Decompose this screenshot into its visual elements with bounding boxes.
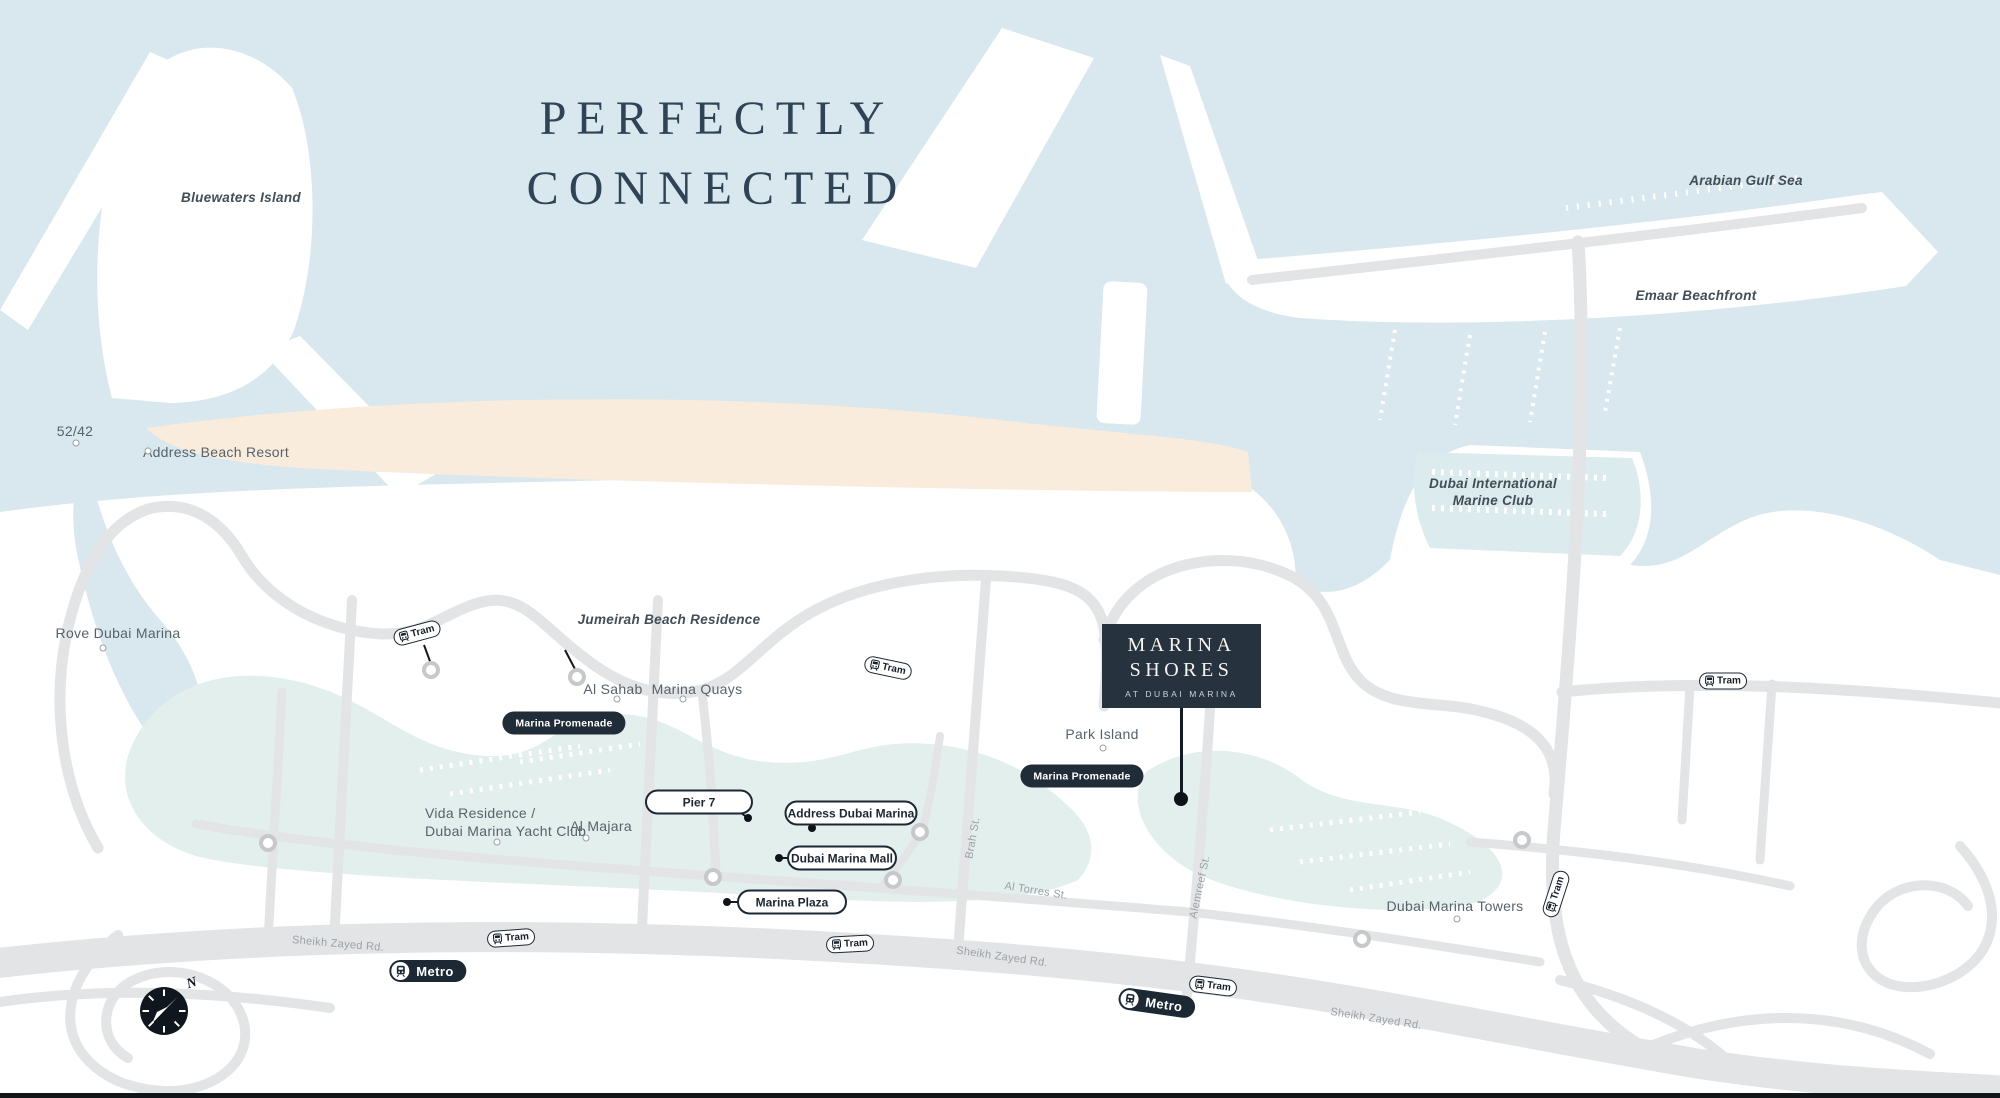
- promenade-badge: Marina Promenade: [502, 712, 625, 735]
- tram-badge: Tram: [392, 619, 443, 648]
- place-label-arabian-gulf-sea: Arabian Gulf Sea: [1689, 173, 1803, 190]
- tram-label: Tram: [881, 661, 907, 677]
- place-label-vida-residence-yacht-club: Vida Residence /Dubai Marina Yacht Club: [425, 805, 586, 840]
- road-label: Sheikh Zayed Rd.: [955, 945, 1048, 970]
- junction-ring: [259, 834, 277, 852]
- title-line-1: PERFECTLY: [417, 84, 1017, 154]
- label-line: Marina Quays: [652, 681, 743, 699]
- place-label-park-island: Park Island: [1065, 726, 1138, 744]
- tram-badge: Tram: [1541, 869, 1572, 920]
- tram-label: Tram: [1206, 980, 1231, 994]
- place-marker: [494, 839, 501, 846]
- project-location-dot: [1174, 792, 1188, 806]
- place-marker: [1454, 916, 1461, 923]
- poi-pill-marina-plaza: Marina Plaza: [737, 890, 847, 915]
- tram-badge: Tram: [826, 934, 875, 953]
- tram-label: Tram: [844, 938, 868, 950]
- compass-icon: N: [139, 986, 189, 1036]
- tram-icon: [1545, 901, 1558, 913]
- project-title: MARINA SHORES: [1127, 633, 1235, 682]
- bottom-bar: [0, 1093, 2000, 1098]
- tram-label: Tram: [1717, 676, 1741, 687]
- label-line: Rove Dubai Marina: [56, 625, 181, 643]
- label-line: 52/42: [57, 423, 94, 441]
- place-marker: [1100, 745, 1107, 752]
- project-title-line-2: SHORES: [1127, 658, 1235, 682]
- label-line: Dubai Marina Towers: [1387, 898, 1524, 916]
- place-marker: [100, 645, 107, 652]
- connectivity-map: Bluewaters Island52/42Address Beach Reso…: [0, 0, 2000, 1098]
- place-marker: [583, 835, 590, 842]
- label-line: Al Sahab: [583, 681, 642, 699]
- place-label-address-beach-resort: Address Beach Resort: [143, 444, 289, 462]
- label-line: Al Majara: [570, 818, 632, 836]
- road-label: Sheikh Zayed Rd.: [292, 934, 385, 954]
- junction-ring: [884, 871, 902, 889]
- poi-location-dot: [775, 854, 783, 862]
- promenade-badge: Marina Promenade: [1020, 765, 1143, 788]
- label-line: Emaar Beachfront: [1635, 288, 1756, 305]
- tram-badge: Tram: [487, 928, 536, 948]
- place-label-bluewaters-island: Bluewaters Island: [181, 190, 301, 207]
- junction-ring: [1513, 831, 1531, 849]
- junction-ring: [1353, 930, 1371, 948]
- poi-location-dot: [723, 898, 731, 906]
- poi-pill-pier-7: Pier 7: [645, 790, 753, 815]
- metro-badge: Metro: [1117, 987, 1197, 1020]
- place-label-al-majara: Al Majara: [570, 818, 632, 836]
- place-label-jumeirah-beach-residence: Jumeirah Beach Residence: [578, 612, 761, 629]
- metro-badge: Metro: [389, 960, 466, 982]
- tram-icon: [493, 933, 503, 945]
- place-label-rove-dubai-marina: Rove Dubai Marina: [56, 625, 181, 643]
- junction-ring: [911, 823, 929, 841]
- label-line: Marine Club: [1429, 493, 1557, 510]
- label-line: Bluewaters Island: [181, 190, 301, 207]
- place-label-marina-quays: Marina Quays: [652, 681, 743, 699]
- place-label-al-sahab: Al Sahab: [583, 681, 642, 699]
- road-label: Brah St.: [963, 816, 982, 860]
- tram-icon: [1705, 676, 1714, 687]
- place-marker: [145, 448, 152, 455]
- road-label: Al Torres St.: [1004, 880, 1069, 902]
- tram-icon: [869, 659, 880, 672]
- tram-label: Tram: [505, 931, 530, 944]
- poi-location-dot: [744, 814, 752, 822]
- tram-icon: [1195, 978, 1205, 990]
- label-line: Dubai Marina Yacht Club: [425, 823, 586, 841]
- tram-badge: Tram: [863, 655, 913, 682]
- tram-label: Tram: [1549, 875, 1567, 901]
- place-marker: [614, 696, 621, 703]
- tram-badge: Tram: [1699, 673, 1747, 690]
- place-label-dubai-marina-towers: Dubai Marina Towers: [1387, 898, 1524, 916]
- project-subtitle: AT DUBAI MARINA: [1125, 689, 1238, 699]
- junction-ring: [422, 661, 440, 679]
- tram-icon: [398, 630, 410, 643]
- marina-shores-card: MARINA SHORES AT DUBAI MARINA: [1102, 624, 1261, 708]
- place-label-emaar-beachfront: Emaar Beachfront: [1635, 288, 1756, 305]
- metro-label: Metro: [416, 964, 453, 979]
- metro-icon: [391, 962, 409, 980]
- place-marker: [680, 696, 687, 703]
- junction-ring: [704, 868, 722, 886]
- tram-icon: [832, 939, 842, 950]
- label-line: Arabian Gulf Sea: [1689, 173, 1803, 190]
- project-title-line-1: MARINA: [1127, 633, 1235, 657]
- metro-icon: [1119, 989, 1139, 1009]
- tram-label: Tram: [410, 623, 436, 640]
- page-title: PERFECTLY CONNECTED: [417, 84, 1017, 224]
- poi-pill-address-dubai-marina: Address Dubai Marina: [785, 801, 918, 826]
- place-label-52-42: 52/42: [57, 423, 94, 441]
- road-label: Alemreef St.: [1187, 854, 1212, 919]
- label-line: Park Island: [1065, 726, 1138, 744]
- label-line: Address Beach Resort: [143, 444, 289, 462]
- label-line: Jumeirah Beach Residence: [578, 612, 761, 629]
- road-label: Sheikh Zayed Rd.: [1330, 1006, 1423, 1032]
- poi-pill-dubai-marina-mall: Dubai Marina Mall: [787, 846, 897, 871]
- project-leader-line: [1180, 708, 1183, 793]
- metro-label: Metro: [1144, 994, 1183, 1014]
- place-marker: [73, 440, 80, 447]
- label-line: Dubai International: [1429, 476, 1557, 493]
- label-line: Vida Residence /: [425, 805, 586, 823]
- tram-badge: Tram: [1188, 975, 1238, 998]
- title-line-2: CONNECTED: [417, 154, 1017, 224]
- place-label-dubai-international-marine-club: Dubai InternationalMarine Club: [1429, 476, 1557, 510]
